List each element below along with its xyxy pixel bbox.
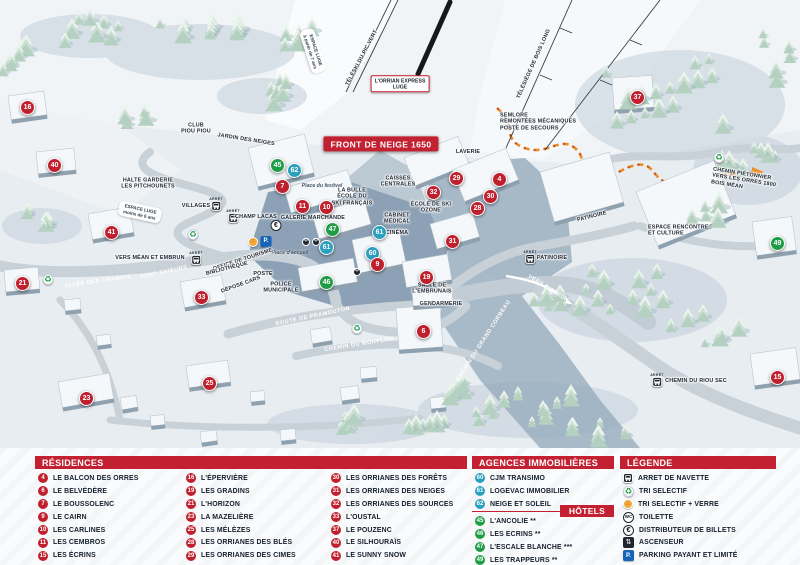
hotels-list: 45L'ANCOLIE **46LES ECRINS **47L'ESCALE … xyxy=(475,515,614,565)
bus-icon xyxy=(211,201,221,211)
item-label: LOGEVAC IMMOBILIER xyxy=(490,488,570,495)
map-marker-33[interactable]: 33 xyxy=(194,290,209,305)
map-label: ESPACE LUGE moins de 6 ans xyxy=(117,200,162,224)
item-label: LES GRADINS xyxy=(201,488,250,495)
map-marker-61[interactable]: 61 xyxy=(319,240,334,255)
bus-icon xyxy=(191,255,201,265)
restaurant-icon: Ψ xyxy=(353,268,361,276)
map-marker-28[interactable]: 28 xyxy=(470,201,485,216)
item-label: LE BOUSSOLENC xyxy=(53,501,114,508)
legend-item: 28LES ORRIANES DES BLÉS xyxy=(186,536,328,549)
legend-item: €DISTRIBUTEUR DE BILLETS xyxy=(623,524,776,537)
residences-column-2: 16L'ÉPERVIÈRE19LES GRADINS21L'HORIZON23L… xyxy=(186,472,328,562)
item-label: LES ORRIANES DES CIMES xyxy=(201,552,296,559)
item-number-badge: 4 xyxy=(38,473,48,483)
residences-header: RÉSIDENCES xyxy=(35,456,467,469)
legend-item: ⇅ASCENSEUR xyxy=(623,536,776,549)
item-label: TRI SELECTIF xyxy=(639,488,687,495)
map-label: L'ORRIAN EXPRESS LUGE xyxy=(371,75,430,92)
item-label: L'OUSTAL xyxy=(346,514,381,521)
item-number-badge: 25 xyxy=(186,525,196,535)
legend-panel: RÉSIDENCES 4LE BALCON DES ORRES6LE BELVÉ… xyxy=(0,448,800,565)
item-number-badge: 33 xyxy=(331,512,341,522)
legend-item: 4LE BALCON DES ORRES xyxy=(38,472,182,485)
map-label: ESPACE LUGE à partir de 7 ans xyxy=(299,27,327,75)
map-label: ROUTE DE PRAMOUTON xyxy=(275,306,351,328)
map-label: LAVERIE xyxy=(456,149,480,155)
parking-icon: P. xyxy=(623,550,634,561)
map-label: LA BULLE ÉCOLE DU SKI FRANÇAIS xyxy=(332,187,373,206)
item-number-badge: 41 xyxy=(331,551,341,561)
legend-item: 60CJM TRANSIMO xyxy=(475,472,614,485)
item-label: LE CAIRN xyxy=(53,514,87,521)
item-label: ARRET DE NAVETTE xyxy=(638,475,709,482)
hotels-header: HÔTELS xyxy=(560,505,614,517)
item-number-badge: 28 xyxy=(186,538,196,548)
legend-item: 41LE SUNNY SNOW xyxy=(331,549,467,562)
agencies-header: AGENCES IMMOBILIÈRES xyxy=(472,456,614,469)
map-label: HALTE GARDERIE LES PITCHOUNETS xyxy=(121,178,175,191)
item-label: PARKING PAYANT ET LIMITÉ xyxy=(639,552,738,559)
map-marker-61[interactable]: 61 xyxy=(372,225,387,240)
item-number-badge: 29 xyxy=(186,551,196,561)
legend-item: 25LES MÉLÈZES xyxy=(186,524,328,537)
item-number-badge: 62 xyxy=(475,499,485,509)
legend-item: 33L'OUSTAL xyxy=(331,511,467,524)
item-label: LE BALCON DES ORRES xyxy=(53,475,139,482)
legend-item: 40LE SILHOURAÏS xyxy=(331,536,467,549)
map-marker-41[interactable]: 41 xyxy=(104,225,119,240)
legende-header: LÉGENDE xyxy=(620,456,776,469)
item-label: LES ORRIANES DES SOURCES xyxy=(346,501,453,508)
item-label: L'ÉPERVIÈRE xyxy=(201,475,248,482)
item-label: NEIGE ET SOLEIL xyxy=(490,501,551,508)
map-marker-23[interactable]: 23 xyxy=(79,391,94,406)
resort-map: 1640412123253345627111047616160946192932… xyxy=(0,0,800,448)
euro-icon: € xyxy=(271,220,282,231)
map-marker-15[interactable]: 15 xyxy=(770,370,785,385)
map-label: ALLÉE DES CHAMOIS xyxy=(64,274,132,290)
item-label: LES CARLINES xyxy=(53,527,105,534)
map-label: GALERIE MARCHANDE xyxy=(281,215,345,221)
map-marker-37[interactable]: 37 xyxy=(630,90,645,105)
item-number-badge: 32 xyxy=(331,499,341,509)
recycle-icon: ♻ xyxy=(188,229,199,240)
map-marker-4[interactable]: 4 xyxy=(492,172,507,187)
map-label: CHEMIN DU GRAND CORBEAU xyxy=(455,299,512,382)
restaurant-icon: Ψ xyxy=(302,238,310,246)
legende-list: ARRET DE NAVETTE♻TRI SELECTIF∴TRI SELECT… xyxy=(623,472,776,562)
map-label: CAISSES CENTRALES xyxy=(381,176,416,189)
item-label: LES ORRIANES DES FORÊTS xyxy=(346,475,447,482)
map-label: VERS EMBRUN xyxy=(526,274,569,305)
legend-item: 16L'ÉPERVIÈRE xyxy=(186,472,328,485)
recycle-icon: ♻ xyxy=(43,274,54,285)
map-marker-46[interactable]: 46 xyxy=(319,275,334,290)
map-label: DÉPOSE CARS xyxy=(220,275,261,295)
map-marker-40[interactable]: 40 xyxy=(47,158,62,173)
item-number-badge: 47 xyxy=(475,542,485,552)
item-number-badge: 37 xyxy=(331,525,341,535)
map-label: FRONT DE NEIGE 1650 xyxy=(323,136,438,151)
map-marker-6[interactable]: 6 xyxy=(416,324,431,339)
bus-stop: ARRÊT xyxy=(650,373,664,387)
item-number-badge: 21 xyxy=(186,499,196,509)
legend-item: ARRET DE NAVETTE xyxy=(623,472,776,485)
glass-icon: ∴ xyxy=(623,499,633,509)
item-number-badge: 6 xyxy=(38,486,48,496)
map-label: CHEMIN DU MOUFLON xyxy=(324,336,394,354)
residences-column-3: 30LES ORRIANES DES FORÊTS31LES ORRIANES … xyxy=(331,472,467,562)
legend-item: 7LE BOUSSOLENC xyxy=(38,498,182,511)
map-label: SALLE DE L'EMBRUNAIS xyxy=(412,283,451,296)
ski-resort-plan: 1640412123253345627111047616160946192932… xyxy=(0,0,800,565)
legend-item: 29LES ORRIANES DES CIMES xyxy=(186,549,328,562)
recycle-icon: ♻ xyxy=(352,323,363,334)
item-number-badge: 46 xyxy=(475,529,485,539)
legend-item: 21L'HORIZON xyxy=(186,498,328,511)
legend-item: 30LES ORRIANES DES FORÊTS xyxy=(331,472,467,485)
bus-stop: ARRÊT xyxy=(189,251,203,265)
item-number-badge: 15 xyxy=(38,551,48,561)
item-label: CJM TRANSIMO xyxy=(490,475,545,482)
map-marker-21[interactable]: 21 xyxy=(15,276,30,291)
map-marker-29[interactable]: 29 xyxy=(449,171,464,186)
legend-item: 61LOGEVAC IMMOBILIER xyxy=(475,485,614,498)
item-label: LES ÉCRINS xyxy=(53,552,96,559)
item-number-badge: 60 xyxy=(475,473,485,483)
map-label: SEMLORE REMONTÉES MÉCANIQUES POSTE DE SE… xyxy=(500,112,576,131)
item-number-badge: 16 xyxy=(186,473,196,483)
legend-item: ♻TRI SELECTIF xyxy=(623,485,776,498)
parking-icon: P. xyxy=(261,236,272,247)
map-label: ÉCOLE DE SKI OZONE xyxy=(411,202,451,215)
item-number-badge: 30 xyxy=(331,473,341,483)
map-label: VILLAGES xyxy=(182,203,211,209)
map-marker-32[interactable]: 32 xyxy=(426,185,441,200)
bus-icon xyxy=(652,377,662,387)
item-label: ASCENSEUR xyxy=(639,539,684,546)
bus-stop: ARRÊT xyxy=(209,197,223,211)
bus-stop: ARRÊT xyxy=(523,250,537,264)
item-number-badge: 11 xyxy=(38,538,48,548)
euro-icon: € xyxy=(623,525,634,536)
legend-item: 10LES CARLINES xyxy=(38,524,182,537)
item-label: LE POUZENC xyxy=(346,527,392,534)
item-label: DISTRIBUTEUR DE BILLETS xyxy=(639,527,736,534)
item-label: L'HORIZON xyxy=(201,501,240,508)
legend-item: 9LE CAIRN xyxy=(38,511,182,524)
item-label: TOILETTE xyxy=(639,514,673,521)
recycle-icon: ♻ xyxy=(714,152,725,163)
item-label: LES MÉLÈZES xyxy=(201,527,251,534)
map-label: GENDARMERIE xyxy=(420,301,463,307)
legend-item: 47L'ESCALE BLANCHE *** xyxy=(475,541,614,554)
map-marker-19[interactable]: 19 xyxy=(419,270,434,285)
item-label: L'ANCOLIE ** xyxy=(490,518,536,525)
map-label: CHEMIN DU RIOU SEC xyxy=(665,378,727,384)
item-number-badge: 10 xyxy=(38,525,48,535)
map-label: POLICE MUNICIPALE xyxy=(263,282,298,295)
map-marker-9[interactable]: 9 xyxy=(370,257,385,272)
map-marker-7[interactable]: 7 xyxy=(275,179,290,194)
item-label: LA MAZELIÈRE xyxy=(201,514,253,521)
item-label: LES ORRIANES DES NEIGES xyxy=(346,488,445,495)
recycle-icon: ♻ xyxy=(623,486,634,497)
item-label: LES ECRINS ** xyxy=(490,531,541,538)
map-marker-16[interactable]: 16 xyxy=(20,100,35,115)
map-marker-10[interactable]: 10 xyxy=(319,200,334,215)
map-overlay: 1640412123253345627111047616160946192932… xyxy=(0,0,800,448)
item-number-badge: 45 xyxy=(475,516,485,526)
glass-icon: ∴ xyxy=(248,237,258,247)
map-label: CHEMIN PIÉTONNIER VERS LES ORRES 1800 BO… xyxy=(710,166,777,195)
legend-item: 49LES TRAPPEURS ** xyxy=(475,554,614,565)
legend-item: 6LE BELVÉDÈRE xyxy=(38,485,182,498)
legend-item: 19LES GRADINS xyxy=(186,485,328,498)
map-marker-49[interactable]: 49 xyxy=(770,236,785,251)
map-marker-30[interactable]: 30 xyxy=(483,189,498,204)
map-label: CABINET MÉDICAL xyxy=(384,213,410,226)
map-marker-47[interactable]: 47 xyxy=(325,222,340,237)
wc-icon: WC xyxy=(623,512,634,523)
legend-item: 46LES ECRINS ** xyxy=(475,528,614,541)
item-label: LES CEMBROS xyxy=(53,539,105,546)
map-label: JARDIN DES NEIGES xyxy=(217,132,275,147)
item-label: LES TRAPPEURS ** xyxy=(490,557,558,564)
map-label: VERS MÉAN ET EMBRUN xyxy=(115,255,184,261)
legend-item: P.PARKING PAYANT ET LIMITÉ xyxy=(623,549,776,562)
map-label: CINÉMA xyxy=(386,230,408,236)
legend-item: 32LES ORRIANES DES SOURCES xyxy=(331,498,467,511)
map-marker-11[interactable]: 11 xyxy=(295,199,310,214)
legend-item: 15LES ÉCRINS xyxy=(38,549,182,562)
item-label: L'ESCALE BLANCHE *** xyxy=(490,544,572,551)
residences-column-1: 4LE BALCON DES ORRES6LE BELVÉDÈRE7LE BOU… xyxy=(38,472,182,562)
map-marker-25[interactable]: 25 xyxy=(202,376,217,391)
item-number-badge: 23 xyxy=(186,512,196,522)
bus-icon xyxy=(623,473,633,483)
map-label: PONT SKIEURS xyxy=(140,265,188,282)
legend-item: ∴TRI SELECTIF + VERRE xyxy=(623,498,776,511)
item-number-badge: 7 xyxy=(38,499,48,509)
item-label: LE SILHOURAÏS xyxy=(346,539,401,546)
map-marker-62[interactable]: 62 xyxy=(287,163,302,178)
map-label: TÉLÉSIÈGE DE BOIS LONG xyxy=(516,28,553,100)
map-label: Place d'accueil xyxy=(272,250,309,256)
item-number-badge: 61 xyxy=(475,486,485,496)
item-number-badge: 49 xyxy=(475,555,485,565)
item-label: TRI SELECTIF + VERRE xyxy=(638,501,719,508)
item-number-badge: 40 xyxy=(331,538,341,548)
hotels-section: HÔTELS 45L'ANCOLIE **46LES ECRINS **47L'… xyxy=(472,511,614,565)
legend-item: WCTOILETTE xyxy=(623,511,776,524)
legend-item: 37LE POUZENC xyxy=(331,524,467,537)
item-label: LE BELVÉDÈRE xyxy=(53,488,107,495)
map-label: ESPACE RENCONTRE ET CULTURE xyxy=(648,225,709,238)
map-label: PATINOIRE xyxy=(537,255,567,261)
legend-item: 11LES CEMBROS xyxy=(38,536,182,549)
map-label: PATINOIRE xyxy=(576,210,607,224)
item-label: LE SUNNY SNOW xyxy=(346,552,406,559)
map-label: CLUB PIOU PIOU xyxy=(181,123,211,136)
item-number-badge: 31 xyxy=(331,486,341,496)
item-number-badge: 19 xyxy=(186,486,196,496)
elevator-icon: ⇅ xyxy=(623,537,634,548)
bus-icon xyxy=(525,254,535,264)
item-label: LES ORRIANES DES BLÉS xyxy=(201,539,292,546)
legend-item: 23LA MAZELIÈRE xyxy=(186,511,328,524)
map-marker-45[interactable]: 45 xyxy=(270,158,285,173)
map-label: CHAMP LACAS xyxy=(235,214,277,220)
item-number-badge: 9 xyxy=(38,512,48,522)
legend-item: 31LES ORRIANES DES NEIGES xyxy=(331,485,467,498)
map-marker-31[interactable]: 31 xyxy=(445,234,460,249)
